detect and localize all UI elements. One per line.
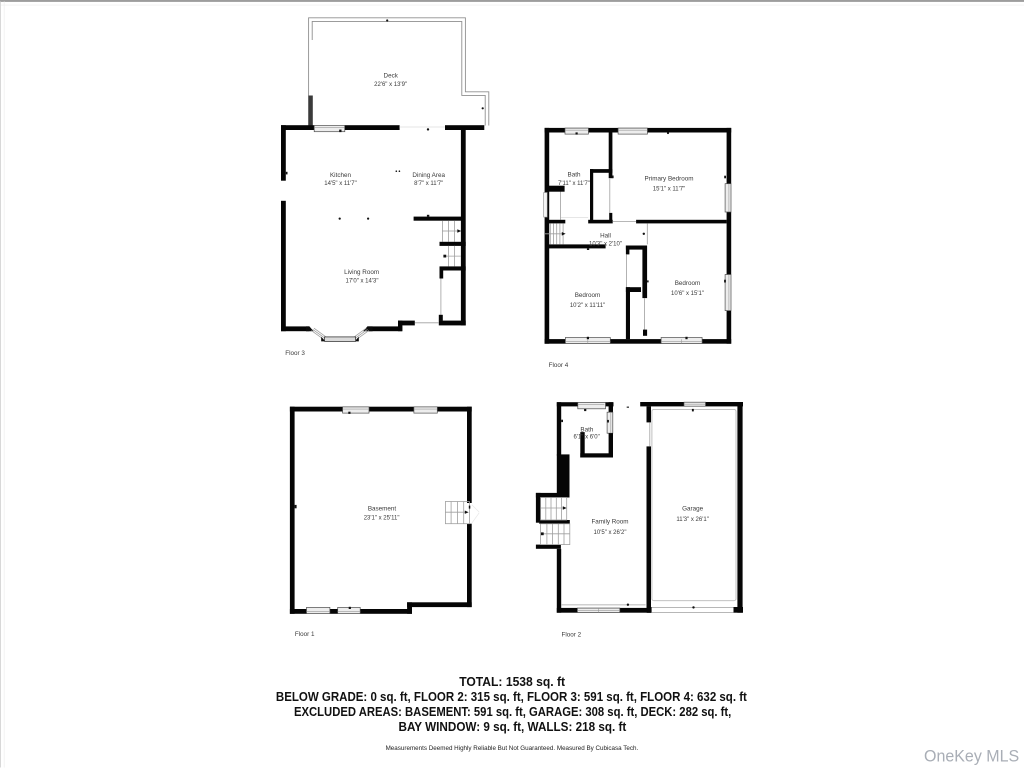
svg-text:17'0" x 14'3": 17'0" x 14'3" xyxy=(346,278,379,284)
svg-text:BAY WINDOW: 9 sq. ft, WALLS: 2: BAY WINDOW: 9 sq. ft, WALLS: 218 sq. ft xyxy=(399,720,628,734)
svg-text:Primary Bedroom: Primary Bedroom xyxy=(645,175,694,182)
svg-text:10'2" x 11'11": 10'2" x 11'11" xyxy=(570,303,605,309)
svg-text:Basement: Basement xyxy=(368,506,397,513)
svg-text:Measurements Deemed Highly Rel: Measurements Deemed Highly Reliable But … xyxy=(386,745,639,752)
svg-text:Bedroom: Bedroom xyxy=(575,292,601,299)
svg-text:Deck: Deck xyxy=(384,73,399,80)
svg-text:Floor 4: Floor 4 xyxy=(549,362,569,369)
svg-text:10'5" x 26'2": 10'5" x 26'2" xyxy=(594,530,627,536)
svg-text:10'3" x 2'10": 10'3" x 2'10" xyxy=(589,241,622,247)
svg-text:Bedroom: Bedroom xyxy=(675,280,701,287)
svg-text:Floor 2: Floor 2 xyxy=(562,631,582,638)
svg-text:Kitchen: Kitchen xyxy=(330,172,352,179)
svg-text:22'6" x 13'9": 22'6" x 13'9" xyxy=(374,82,407,88)
svg-text:BELOW GRADE: 0 sq. ft, FLOOR 2: BELOW GRADE: 0 sq. ft, FLOOR 2: 315 sq. … xyxy=(276,690,748,704)
svg-text:Bath: Bath xyxy=(580,426,593,433)
svg-text:Hall: Hall xyxy=(600,233,611,240)
svg-text:Bath: Bath xyxy=(568,171,581,178)
svg-text:Floor 1: Floor 1 xyxy=(295,631,315,638)
svg-text:Dining Area: Dining Area xyxy=(412,172,445,179)
svg-text:10'6" x 15'1": 10'6" x 15'1" xyxy=(671,291,704,297)
svg-text:Living Room: Living Room xyxy=(344,269,379,276)
svg-text:EXCLUDED AREAS: BASEMENT: 591: EXCLUDED AREAS: BASEMENT: 591 sq. ft, GA… xyxy=(294,705,731,719)
svg-text:6'1" x 6'0": 6'1" x 6'0" xyxy=(573,435,599,441)
svg-text:Garage: Garage xyxy=(682,505,704,512)
svg-text:11'3" x 26'1": 11'3" x 26'1" xyxy=(676,517,708,523)
svg-text:8'7" x 11'7": 8'7" x 11'7" xyxy=(414,181,443,187)
svg-text:15'1" x 11'7": 15'1" x 11'7" xyxy=(653,186,685,192)
svg-text:14'5" x 11'7": 14'5" x 11'7" xyxy=(324,181,356,187)
svg-text:Floor 3: Floor 3 xyxy=(285,350,305,357)
svg-text:23'1" x 25'11": 23'1" x 25'11" xyxy=(364,516,400,522)
svg-text:OneKey MLS: OneKey MLS xyxy=(924,748,1019,766)
svg-text:7'11" x 11'7": 7'11" x 11'7" xyxy=(558,181,590,187)
svg-text:Family Room: Family Room xyxy=(591,518,628,525)
svg-text:TOTAL: 1538 sq. ft: TOTAL: 1538 sq. ft xyxy=(459,675,566,689)
